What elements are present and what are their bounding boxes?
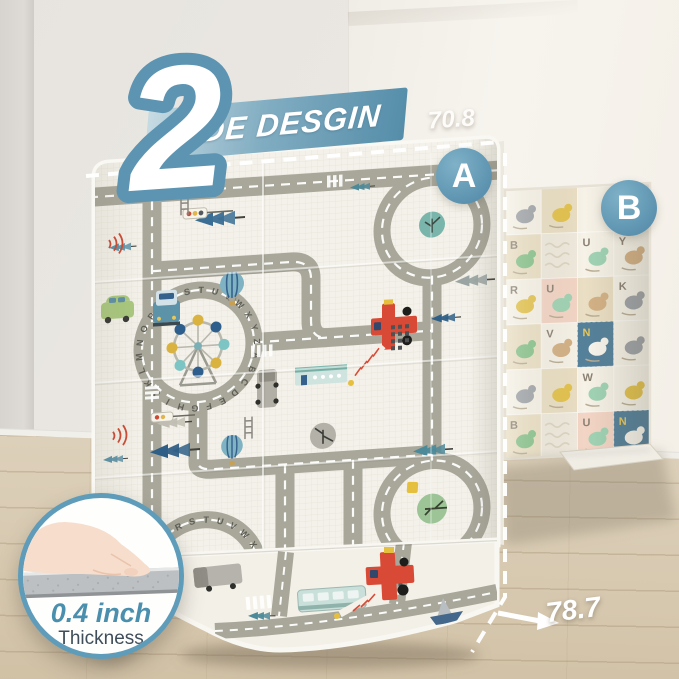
thickness-label: Thickness — [23, 628, 179, 650]
depth-dimension-label: 78.7 — [544, 591, 602, 629]
svg-text:G: G — [196, 633, 204, 643]
product-image: XBUYRUKVNWBUN — [0, 0, 679, 679]
side-a-badge: A — [436, 148, 492, 204]
side-b-badge: B — [601, 180, 657, 236]
thickness-callout: 0.4 inch Thickness — [18, 493, 184, 659]
baby-hand-icon — [23, 522, 150, 577]
big-number-2: 2 — [55, 8, 285, 228]
thickness-value: 0.4 inch — [23, 598, 179, 629]
width-dimension-label: 70.8 — [427, 104, 476, 135]
svg-text:H: H — [181, 631, 190, 642]
svg-text:2: 2 — [117, 27, 231, 228]
